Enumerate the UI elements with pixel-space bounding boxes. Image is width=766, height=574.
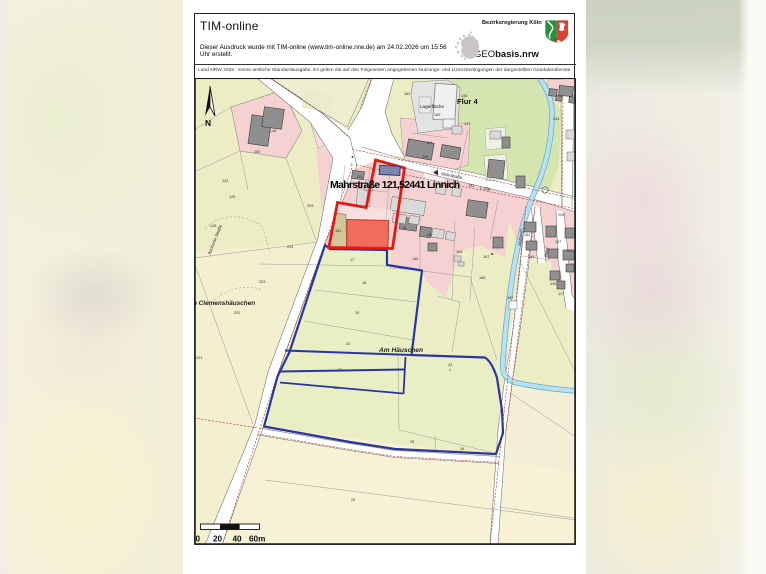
svg-text:26: 26 <box>460 447 464 451</box>
svg-text:1,48: 1,48 <box>269 129 276 133</box>
svg-text:150: 150 <box>254 150 260 154</box>
svg-text:201: 201 <box>196 356 202 360</box>
svg-text:29: 29 <box>351 498 355 502</box>
svg-text:19: 19 <box>355 311 359 315</box>
svg-text:147: 147 <box>464 122 470 126</box>
svg-text:205: 205 <box>422 155 428 159</box>
svg-text:18: 18 <box>362 281 366 285</box>
svg-text:25: 25 <box>410 440 414 444</box>
svg-text:17: 17 <box>350 258 354 262</box>
svg-text:162: 162 <box>404 92 410 96</box>
svg-text:166: 166 <box>479 276 485 280</box>
svg-text:117: 117 <box>558 292 564 296</box>
svg-text:123: 123 <box>222 179 228 183</box>
svg-text:149: 149 <box>426 233 432 237</box>
svg-text:167: 167 <box>483 255 489 259</box>
svg-text:N: N <box>205 118 211 128</box>
svg-text:20: 20 <box>346 342 350 346</box>
svg-text:184: 184 <box>524 233 530 237</box>
svg-text:161: 161 <box>335 229 341 233</box>
svg-text:141: 141 <box>566 249 572 253</box>
svg-text:60m: 60m <box>249 535 265 544</box>
svg-text:165: 165 <box>434 113 440 117</box>
svg-text:0: 0 <box>196 535 201 544</box>
svg-text:1: 1 <box>449 368 451 372</box>
svg-text:234: 234 <box>553 117 559 121</box>
svg-text:Flur 4: Flur 4 <box>457 97 478 106</box>
svg-text:21: 21 <box>338 368 342 372</box>
svg-text:163: 163 <box>357 175 363 179</box>
svg-text:23: 23 <box>334 386 338 390</box>
svg-text:Mahrstraße 121,52441 Linnich: Mahrstraße 121,52441 Linnich <box>330 179 460 191</box>
svg-text:137: 137 <box>555 240 561 244</box>
svg-text:148: 148 <box>461 94 467 98</box>
svg-text:187: 187 <box>507 296 513 300</box>
svg-text:202: 202 <box>234 311 240 315</box>
svg-text:128: 128 <box>210 224 216 228</box>
svg-text:164: 164 <box>528 255 534 259</box>
svg-text:130: 130 <box>550 282 556 286</box>
svg-text:n Clemenshäuschen: n Clemenshäuschen <box>194 300 255 307</box>
svg-text:16: 16 <box>402 226 406 230</box>
svg-text:125: 125 <box>229 195 235 199</box>
svg-text:23: 23 <box>448 363 452 367</box>
svg-text:208: 208 <box>558 213 564 217</box>
svg-text:40: 40 <box>233 535 243 544</box>
svg-text:164: 164 <box>426 141 432 145</box>
svg-text:204: 204 <box>287 245 293 249</box>
svg-text:Am Häuschen: Am Häuschen <box>378 347 423 354</box>
svg-text:20: 20 <box>213 535 223 544</box>
svg-text:146: 146 <box>412 257 418 261</box>
svg-text:209: 209 <box>307 204 313 208</box>
svg-text:203: 203 <box>259 280 265 284</box>
svg-text:2: 2 <box>351 163 353 167</box>
svg-text:168: 168 <box>456 250 462 254</box>
svg-text:Lagerfläche: Lagerfläche <box>420 104 444 109</box>
